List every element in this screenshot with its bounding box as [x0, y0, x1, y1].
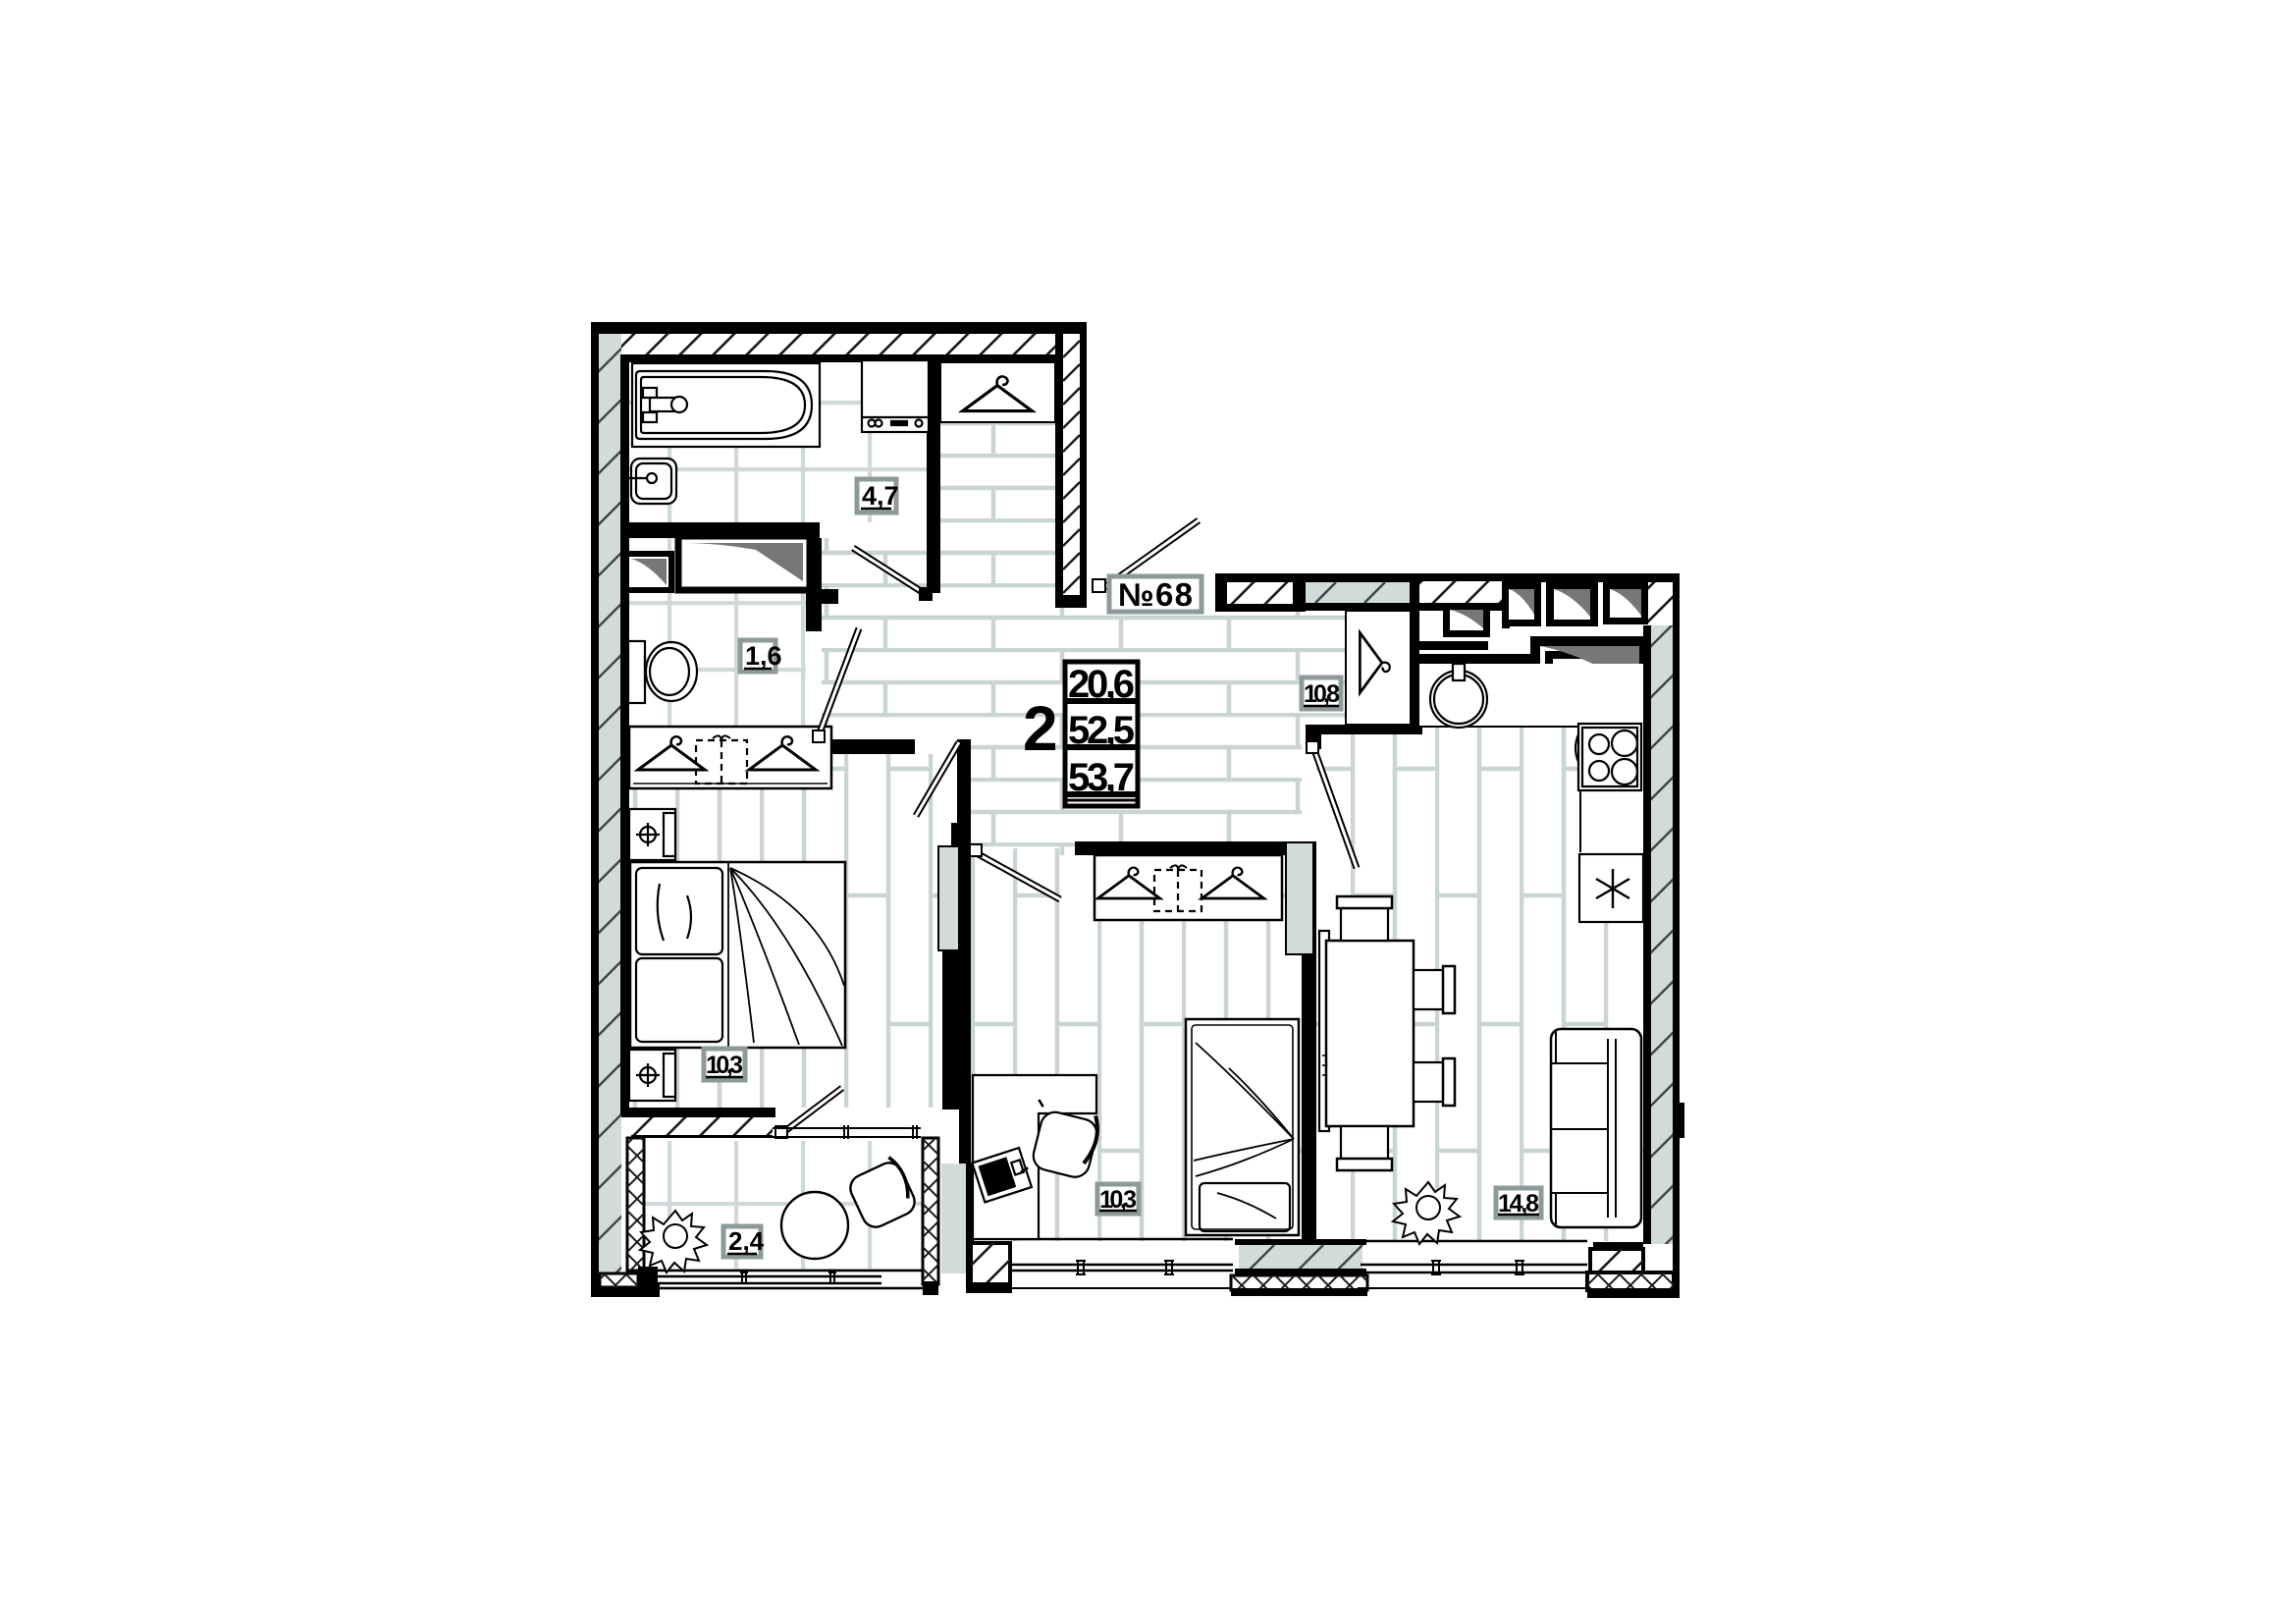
svg-text:52,5: 52,5 [1068, 709, 1135, 752]
svg-text:№68: №68 [1118, 576, 1193, 613]
svg-text:1,6: 1,6 [745, 641, 782, 671]
svg-text:2: 2 [1023, 693, 1058, 764]
svg-text:10,8: 10,8 [1304, 680, 1340, 708]
svg-text:2,4: 2,4 [728, 1226, 765, 1256]
svg-text:53,7: 53,7 [1068, 756, 1135, 799]
svg-text:10,3: 10,3 [706, 1052, 743, 1079]
svg-text:20,6: 20,6 [1068, 663, 1135, 706]
svg-text:4,7: 4,7 [862, 481, 899, 511]
